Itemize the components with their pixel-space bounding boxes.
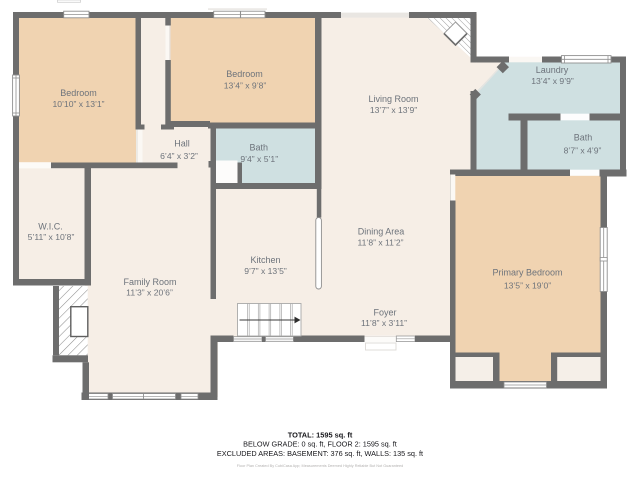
svg-text:BELOW GRADE: 0 sq. ft, FLOOR 2: BELOW GRADE: 0 sq. ft, FLOOR 2: 1595 sq.… xyxy=(243,440,397,449)
svg-text:13’4” x 9’9”: 13’4” x 9’9” xyxy=(531,76,574,86)
svg-text:Hall: Hall xyxy=(174,138,190,148)
svg-text:13’5” x 19’0”: 13’5” x 19’0” xyxy=(504,281,551,291)
svg-text:8’7” x 4’9”: 8’7” x 4’9” xyxy=(564,146,602,156)
svg-text:11’8” x 3’11”: 11’8” x 3’11” xyxy=(361,318,407,328)
svg-text:13’4” x 9’8”: 13’4” x 9’8” xyxy=(224,80,267,90)
svg-text:5’11” x 10’8”: 5’11” x 10’8” xyxy=(28,232,75,242)
svg-text:11’8” x 11’2”: 11’8” x 11’2” xyxy=(357,238,403,248)
svg-text:13’7” x 13’9”: 13’7” x 13’9” xyxy=(370,105,417,115)
svg-text:6’4” x 3’2”: 6’4” x 3’2” xyxy=(160,151,198,161)
svg-text:Dining Area: Dining Area xyxy=(358,227,405,237)
svg-text:Kitchen: Kitchen xyxy=(250,255,280,265)
svg-text:Bedroom: Bedroom xyxy=(60,88,97,98)
svg-text:11’3” x 20’6”: 11’3” x 20’6” xyxy=(126,287,173,297)
svg-text:Living Room: Living Room xyxy=(368,94,418,104)
svg-text:Laundry: Laundry xyxy=(536,65,569,75)
svg-text:Floor Plan Created By CubiCasa: Floor Plan Created By CubiCasa App; Meas… xyxy=(237,464,404,468)
svg-text:Bedroom: Bedroom xyxy=(226,69,263,79)
svg-text:9’4” x 5’1”: 9’4” x 5’1” xyxy=(240,154,278,164)
svg-text:10’10” x 13’1”: 10’10” x 13’1” xyxy=(52,99,104,109)
svg-text:Foyer: Foyer xyxy=(373,307,396,317)
svg-text:Family Room: Family Room xyxy=(123,277,176,287)
svg-text:W.I.C.: W.I.C. xyxy=(38,221,63,231)
svg-text:Primary Bedroom: Primary Bedroom xyxy=(492,268,562,278)
svg-text:9’7” x 13’5”: 9’7” x 13’5” xyxy=(244,266,287,276)
svg-text:EXCLUDED AREAS: BASEMENT: 376: EXCLUDED AREAS: BASEMENT: 376 sq. ft, WA… xyxy=(217,449,423,458)
svg-text:TOTAL: 1595 sq. ft: TOTAL: 1595 sq. ft xyxy=(288,430,353,439)
svg-text:Bath: Bath xyxy=(249,143,268,153)
svg-text:Bath: Bath xyxy=(574,133,593,143)
